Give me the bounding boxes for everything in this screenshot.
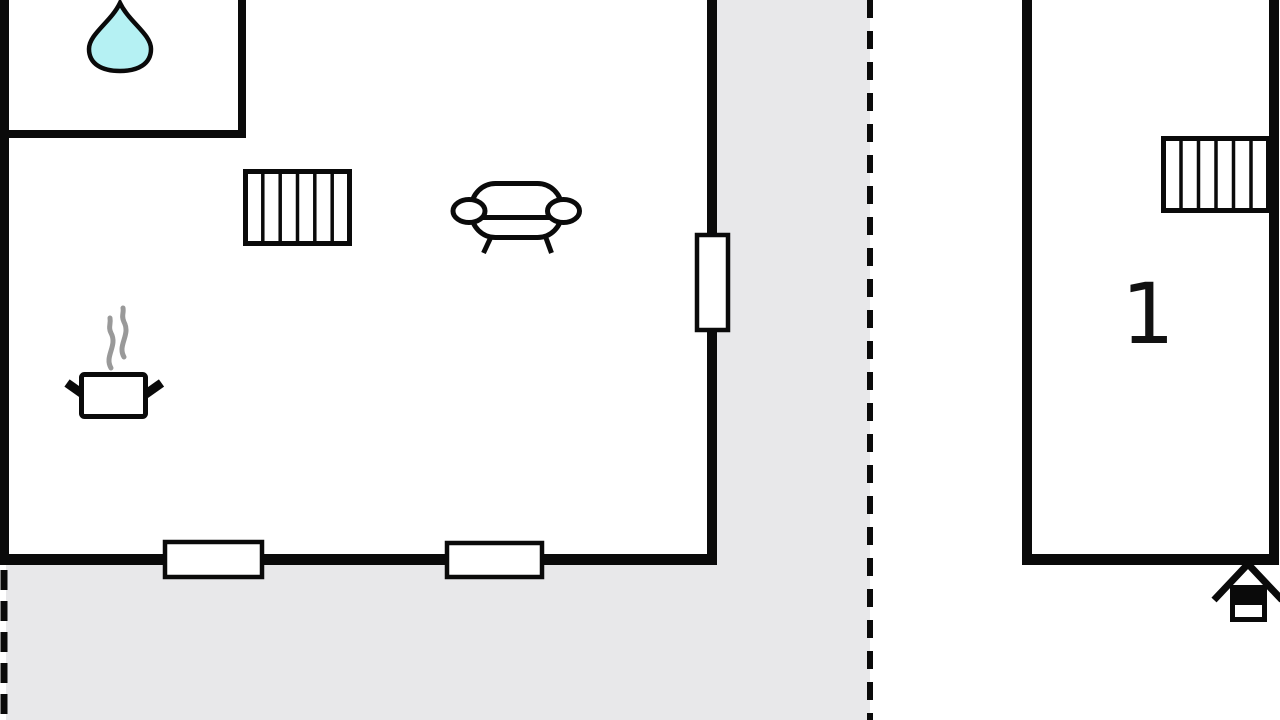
pot-body [82,375,146,417]
sofa-icon [453,184,580,254]
room-1: 1 [1022,0,1279,565]
house-lower-box [1233,603,1265,620]
room1-wall-right [1269,0,1279,565]
terrace-bottom [6,565,870,720]
steam-line [122,308,126,357]
sofa-armrest-right [548,200,580,223]
wall-bottom [0,554,717,565]
floor-plan-canvas: 1 [0,0,1280,720]
wall-left [0,0,9,565]
room1-wall-bottom [1022,554,1279,565]
room1-label: 1 [1121,265,1174,363]
water-drop-icon [89,3,151,71]
room1-wall-left [1022,0,1032,565]
terrace [6,0,870,720]
bathroom-wall-bottom [0,130,246,138]
bathroom [0,0,246,138]
floor-plan: 1 [0,0,1280,720]
sofa-armrest-left [453,200,485,223]
window-bottom-left [165,542,262,577]
window-bottom-right [447,543,542,577]
living-room [0,0,717,565]
cooking-pot-icon [67,308,162,417]
sofa-leg-left [484,238,491,253]
sofa-leg-right [546,238,552,253]
bathroom-wall-right [238,0,246,138]
radiator-icon [1164,139,1269,211]
radiator-icon [246,172,350,244]
openings [165,235,728,577]
steam-line [109,318,113,368]
window-right-wall [697,235,728,330]
entrance-house-icon [1214,563,1280,620]
